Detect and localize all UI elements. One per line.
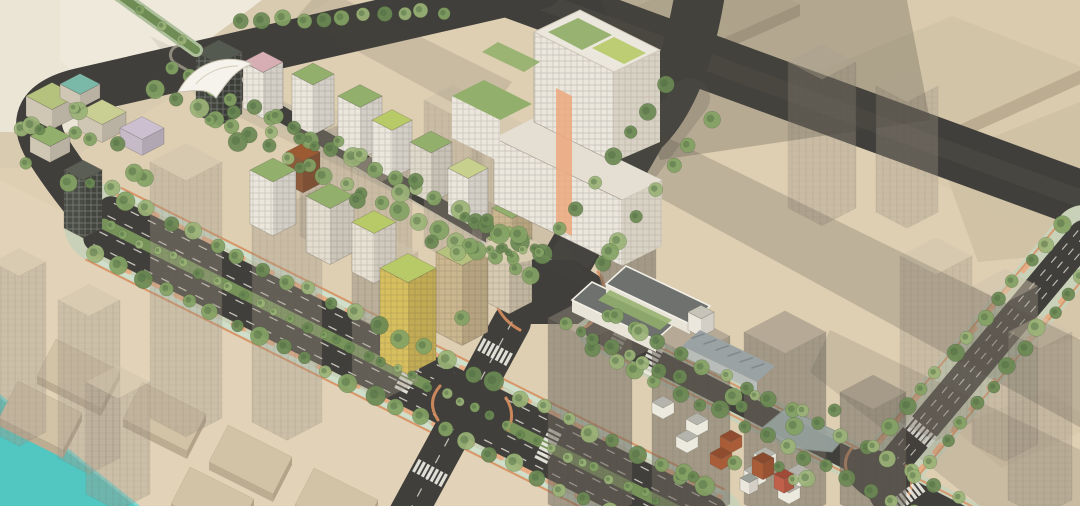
tree <box>457 432 475 450</box>
tree <box>652 498 659 505</box>
tree <box>1050 307 1062 319</box>
tree <box>650 334 665 349</box>
tree <box>135 5 145 15</box>
tree <box>486 246 494 254</box>
tree <box>502 421 512 431</box>
tree <box>270 308 277 315</box>
tree <box>390 201 410 221</box>
tree <box>586 333 599 346</box>
tree <box>736 401 748 413</box>
tree <box>269 109 283 123</box>
tree <box>534 247 544 257</box>
tree <box>256 299 265 308</box>
tree <box>356 8 369 21</box>
tree <box>317 13 332 28</box>
tree <box>227 105 241 119</box>
tree <box>505 453 523 471</box>
tree <box>928 366 941 379</box>
tree <box>166 62 179 75</box>
tree <box>376 357 386 367</box>
tree <box>438 422 453 437</box>
tree <box>205 115 215 125</box>
tree <box>1018 341 1034 357</box>
tree <box>184 222 201 239</box>
tree <box>334 10 349 25</box>
tree <box>253 12 270 29</box>
tree <box>577 492 590 505</box>
tree <box>652 364 667 379</box>
tree <box>674 347 688 361</box>
tree <box>410 213 427 230</box>
tree <box>470 402 480 412</box>
tree <box>20 157 32 169</box>
tree <box>466 367 482 383</box>
red-block <box>752 452 774 479</box>
tree <box>345 343 355 353</box>
tree <box>367 162 383 178</box>
tree <box>438 8 450 20</box>
tree <box>391 184 410 203</box>
tower-core <box>556 88 572 236</box>
tree <box>229 249 244 264</box>
tree <box>639 103 656 120</box>
tree <box>773 461 784 472</box>
tree <box>438 350 457 369</box>
tree <box>349 192 365 208</box>
tree <box>727 456 742 471</box>
tree <box>319 365 331 377</box>
tree <box>694 360 710 376</box>
tree <box>69 103 80 114</box>
tree <box>413 3 428 18</box>
tree <box>512 391 529 408</box>
tree <box>649 183 663 197</box>
tree <box>533 437 540 444</box>
tree <box>988 381 1000 393</box>
tree <box>423 383 433 393</box>
tree <box>635 356 649 370</box>
tree <box>1062 288 1075 301</box>
tree <box>885 495 898 506</box>
tree <box>992 292 1006 306</box>
tree <box>711 400 729 418</box>
tree <box>193 269 203 279</box>
tree <box>294 132 306 144</box>
tree <box>563 412 576 425</box>
tree <box>231 320 243 332</box>
tree <box>310 142 320 152</box>
tree <box>256 263 270 277</box>
tree <box>118 230 128 240</box>
tree <box>998 357 1015 374</box>
tree <box>1005 275 1018 288</box>
tree <box>760 427 776 443</box>
ghost-tower <box>0 248 46 446</box>
tree <box>623 482 633 492</box>
tree <box>1054 216 1072 234</box>
tree <box>694 399 706 411</box>
tree <box>788 474 799 485</box>
tree <box>667 158 682 173</box>
tree <box>332 335 341 344</box>
tree <box>425 235 439 249</box>
tree <box>529 470 545 486</box>
tree <box>608 308 623 323</box>
tree <box>301 281 315 295</box>
tree <box>589 462 599 472</box>
tree <box>588 176 601 189</box>
tree <box>881 418 898 435</box>
tree <box>138 200 154 216</box>
tree <box>228 132 247 151</box>
rendering-canvas <box>0 0 1080 506</box>
tree <box>450 245 466 261</box>
tree <box>104 180 120 196</box>
tree <box>560 317 573 330</box>
tree <box>750 390 760 400</box>
tree <box>109 256 127 274</box>
tree <box>510 226 528 244</box>
tree <box>522 267 540 285</box>
tree <box>341 178 354 191</box>
tree <box>353 148 367 162</box>
tree <box>35 125 45 135</box>
tree <box>169 251 177 259</box>
tree <box>704 111 721 128</box>
tree <box>923 455 937 469</box>
tree <box>485 410 495 420</box>
tree <box>978 310 994 326</box>
tree <box>721 369 733 381</box>
tree <box>624 126 637 139</box>
tree <box>655 458 669 472</box>
tree <box>211 239 225 253</box>
tree <box>971 396 984 409</box>
tree <box>179 258 188 267</box>
yellow-tower <box>380 253 436 374</box>
tree <box>154 247 162 255</box>
tree <box>454 310 469 325</box>
tree <box>274 10 290 26</box>
tree <box>673 370 687 384</box>
building <box>306 184 354 265</box>
tree <box>233 13 248 28</box>
tree <box>537 399 551 413</box>
tree <box>279 275 294 290</box>
tree <box>333 136 344 147</box>
tree <box>201 303 217 319</box>
tree <box>947 344 965 362</box>
tree <box>879 450 896 467</box>
tree <box>60 174 78 192</box>
tree <box>190 98 209 117</box>
tree <box>828 404 841 417</box>
tree <box>315 167 332 184</box>
tree <box>69 126 82 139</box>
tree <box>624 349 635 360</box>
tree <box>519 245 528 254</box>
tree <box>239 291 248 300</box>
tree <box>484 371 504 391</box>
tree <box>387 399 403 415</box>
tree <box>481 447 496 462</box>
tree <box>785 417 803 435</box>
tree <box>416 338 432 354</box>
tree <box>568 202 583 217</box>
tree <box>377 6 392 21</box>
tree <box>399 7 412 20</box>
tree <box>110 136 125 151</box>
tree <box>604 475 614 485</box>
building <box>740 473 758 494</box>
tree <box>408 371 417 380</box>
tree <box>297 14 312 29</box>
tree <box>146 80 165 99</box>
tree <box>157 21 167 31</box>
tree <box>298 352 310 364</box>
tree <box>135 240 144 249</box>
tree <box>263 139 277 153</box>
tree <box>320 331 328 339</box>
tree <box>641 488 650 497</box>
tree <box>833 429 848 444</box>
tree <box>629 446 647 464</box>
tree <box>460 212 470 222</box>
tree <box>688 471 699 482</box>
tree <box>364 351 374 361</box>
tree <box>605 434 618 447</box>
tree <box>169 92 183 106</box>
tree <box>581 425 599 443</box>
tree <box>125 164 143 182</box>
tree <box>408 173 423 188</box>
tree <box>390 330 409 349</box>
tree <box>553 484 567 498</box>
tree <box>83 133 96 146</box>
tree <box>954 416 967 429</box>
tree <box>609 354 624 369</box>
tree <box>953 491 966 504</box>
tree <box>106 221 116 231</box>
tree <box>739 421 751 433</box>
tree <box>442 388 452 398</box>
tree <box>370 316 388 334</box>
tree <box>578 459 586 467</box>
tree <box>481 213 494 226</box>
tree <box>505 249 512 256</box>
tree <box>286 315 294 323</box>
tree <box>116 192 135 211</box>
tree <box>812 417 825 430</box>
tree <box>1026 254 1038 266</box>
tree <box>605 148 622 165</box>
masterplan-rendering: Axonometric rendering of a linear mixed-… <box>0 0 1080 506</box>
tree <box>1038 237 1054 253</box>
tree <box>576 327 586 337</box>
tree <box>164 217 179 232</box>
tree <box>601 243 618 260</box>
tree <box>325 297 337 309</box>
tree <box>631 323 649 341</box>
tree <box>907 469 921 483</box>
tree <box>547 444 556 453</box>
tree <box>294 162 305 173</box>
tree <box>347 304 364 321</box>
ghost-tower <box>86 365 150 506</box>
tree <box>796 451 811 466</box>
tree <box>680 138 695 153</box>
tree <box>85 178 95 188</box>
tree <box>250 327 269 346</box>
tree <box>942 435 954 447</box>
tree <box>277 339 292 354</box>
tree <box>394 364 402 372</box>
tree <box>630 210 643 223</box>
tree <box>375 196 389 210</box>
tree <box>820 459 833 472</box>
building <box>250 158 296 236</box>
tree <box>224 119 239 134</box>
tree <box>224 93 237 106</box>
tree <box>183 294 196 307</box>
tree <box>839 470 856 487</box>
tree <box>899 397 916 414</box>
tree <box>366 386 386 406</box>
tree <box>213 277 222 286</box>
tree <box>456 397 465 406</box>
tree <box>412 408 429 425</box>
tree <box>915 383 927 395</box>
tree <box>134 270 152 288</box>
tree <box>302 322 313 333</box>
tree <box>177 35 187 45</box>
tree <box>960 331 973 344</box>
tree <box>867 440 879 452</box>
tree <box>926 478 941 493</box>
tree <box>86 245 104 263</box>
tree <box>223 282 233 292</box>
tree <box>160 282 174 296</box>
tree <box>1028 319 1046 337</box>
tree <box>657 76 674 93</box>
tree <box>563 453 574 464</box>
tree <box>780 439 796 455</box>
tree <box>796 404 809 417</box>
tree <box>282 152 295 165</box>
tree <box>798 470 815 487</box>
tree <box>247 99 262 114</box>
tree <box>338 374 357 393</box>
tree <box>265 126 278 139</box>
tree <box>760 391 776 407</box>
corner-dark-building <box>64 160 102 238</box>
tree <box>673 386 689 402</box>
tree <box>864 484 878 498</box>
tree <box>553 222 566 235</box>
tree <box>516 430 525 439</box>
tree <box>604 339 620 355</box>
tree <box>427 191 442 206</box>
